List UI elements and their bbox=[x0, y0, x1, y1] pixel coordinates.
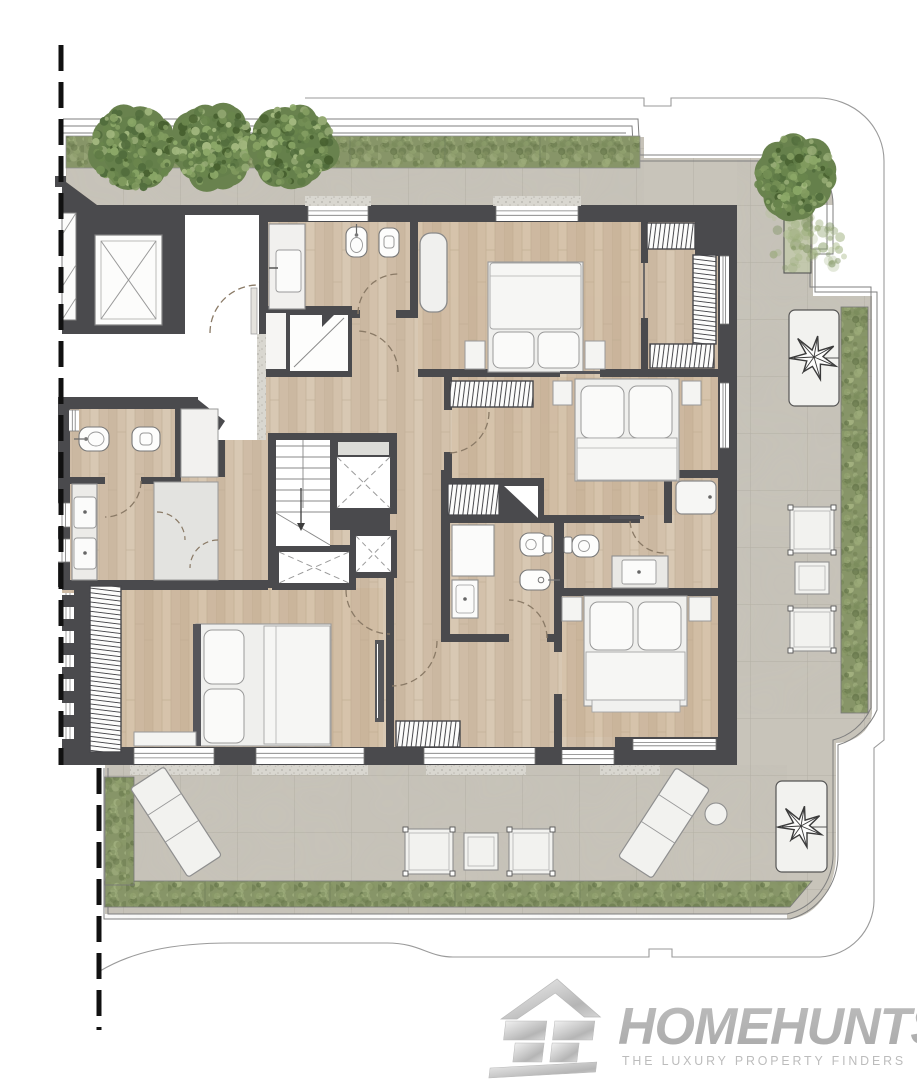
svg-text:HOMEHUNTS: HOMEHUNTS bbox=[618, 998, 917, 1056]
svg-text:THE LUXURY PROPERTY FINDERS: THE LUXURY PROPERTY FINDERS bbox=[622, 1053, 906, 1068]
